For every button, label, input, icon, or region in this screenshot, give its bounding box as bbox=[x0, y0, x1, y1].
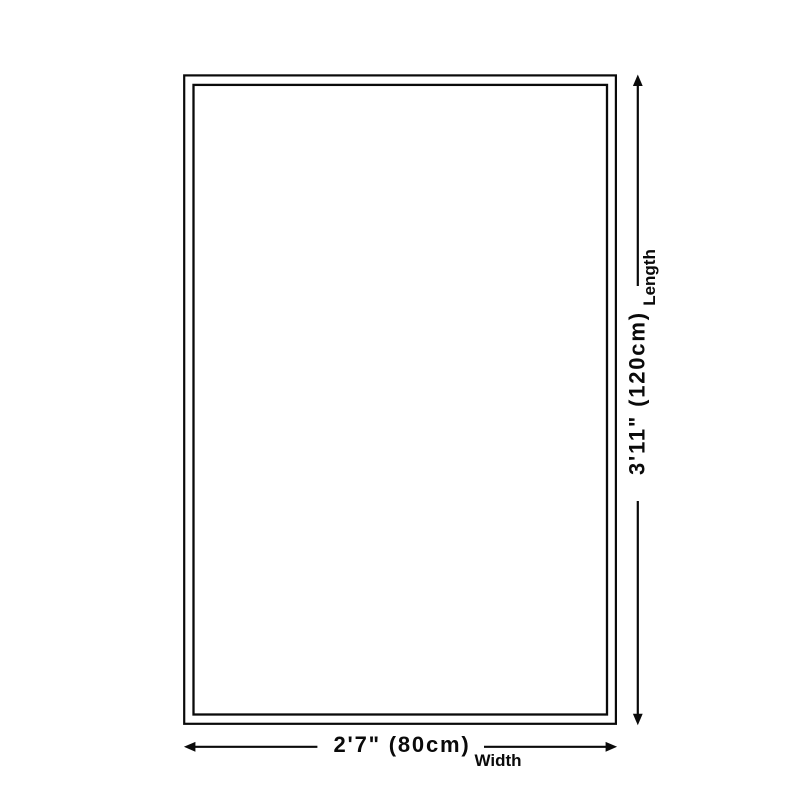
svg-text:3'11" (120cm): 3'11" (120cm) bbox=[624, 311, 649, 475]
svg-text:Width: Width bbox=[475, 751, 522, 770]
svg-text:Length: Length bbox=[640, 249, 659, 306]
svg-text:2'7" (80cm): 2'7" (80cm) bbox=[334, 732, 471, 757]
